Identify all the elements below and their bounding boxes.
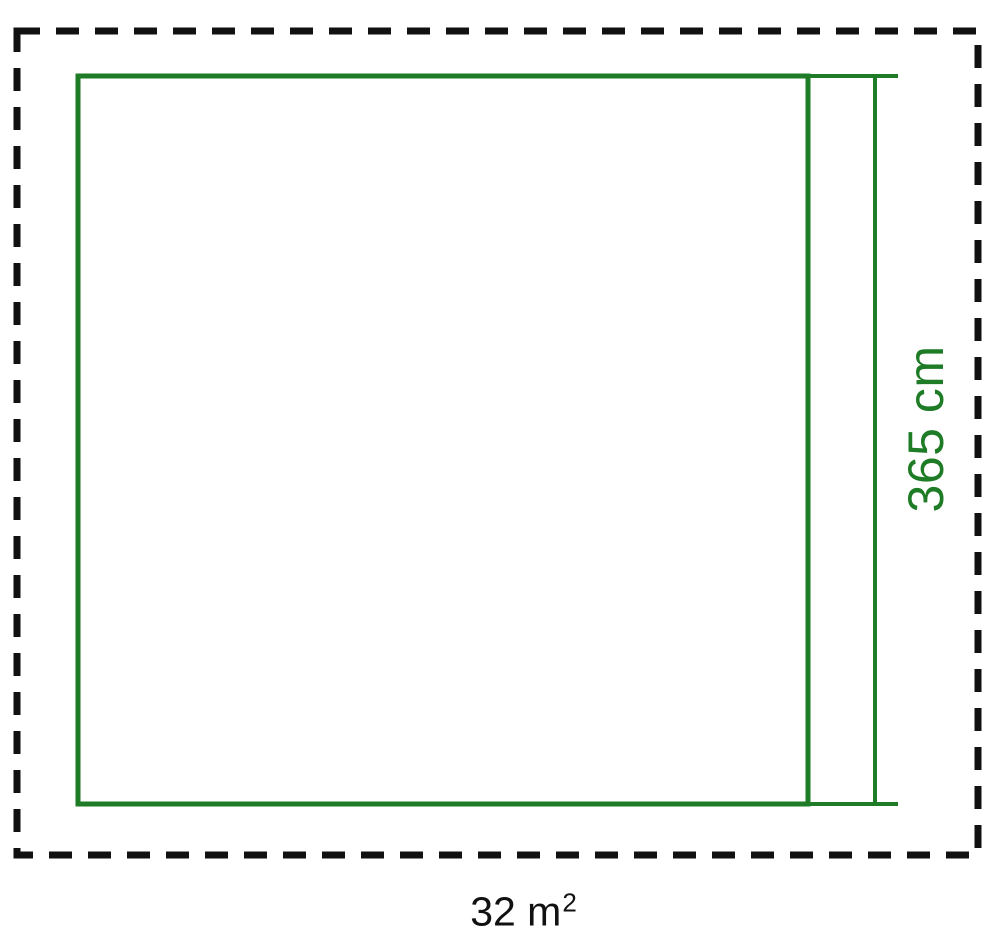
diagram-lines — [0, 0, 996, 950]
area-superscript: 2 — [562, 888, 576, 918]
outer-dashed-boundary — [17, 31, 978, 855]
area-label: 32 m2 — [470, 889, 576, 936]
inner-square-outline — [78, 76, 808, 804]
height-dimension-label: 365 cm — [897, 346, 955, 513]
area-value: 32 m — [470, 889, 561, 935]
dimension-diagram: 365 cm 32 m2 — [0, 0, 996, 950]
